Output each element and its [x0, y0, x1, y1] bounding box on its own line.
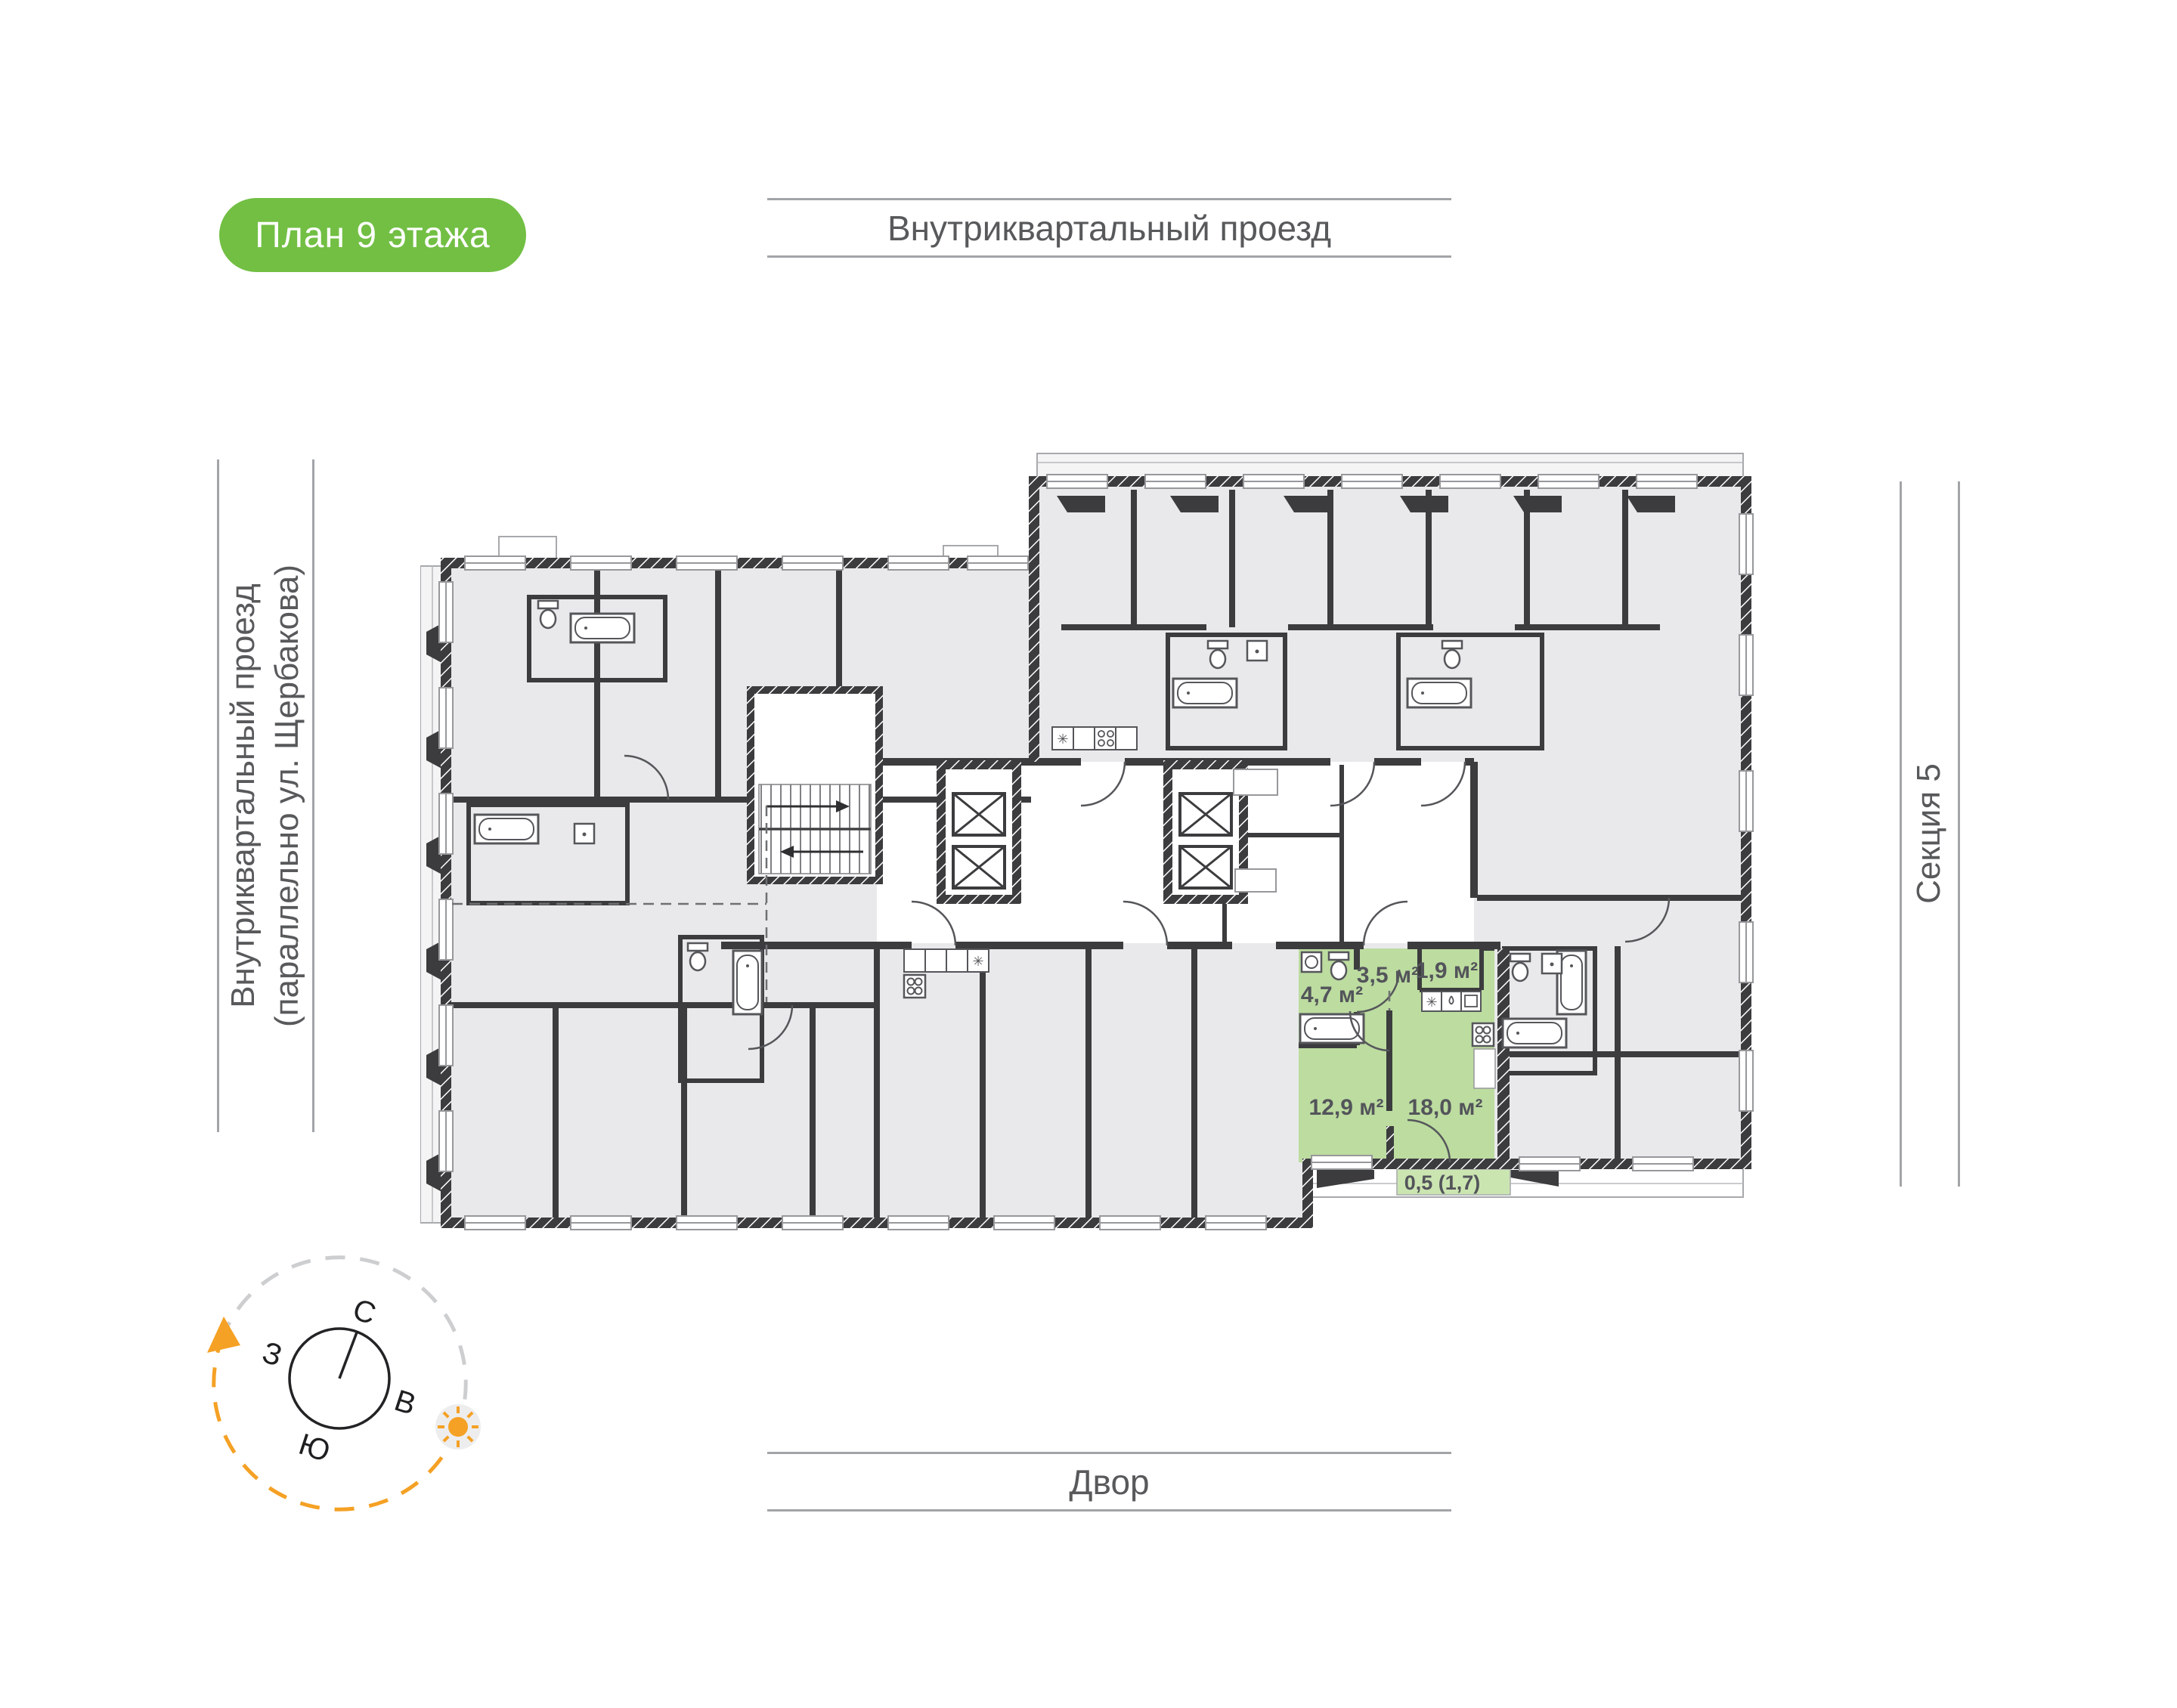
svg-text:✳: ✳ — [1057, 732, 1068, 747]
svg-text:✳: ✳ — [972, 954, 983, 969]
yard-label: Двор — [767, 1452, 1451, 1512]
section-label-text: Секция 5 — [1907, 763, 1951, 904]
area-label-balcony: 0,5 (1,7) — [1404, 1171, 1481, 1194]
area-label-kitchen-living: 18,0 м² — [1408, 1095, 1483, 1120]
section-line-inner — [1958, 481, 1960, 1187]
building-body — [446, 481, 1746, 1223]
area-label-bedroom: 12,9 м² — [1309, 1095, 1384, 1120]
svg-text:✳: ✳ — [1426, 995, 1437, 1010]
area-label-bathroom: 4,7 м² — [1301, 982, 1363, 1007]
compass-north: С — [348, 1293, 379, 1332]
compass-rose: С В Ю З — [195, 1239, 485, 1530]
elevator-core-left — [941, 765, 1017, 899]
street-line-left-outer — [217, 459, 219, 1132]
floor-plan: ✳ ✳ ✳ — [420, 450, 1754, 1258]
street-label-top: Внутриквартальный проезд — [767, 198, 1451, 258]
staircase — [751, 690, 879, 880]
street-label-left-line1: Внутриквартальный проезд — [221, 565, 265, 1027]
compass-south: Ю — [295, 1428, 334, 1468]
yard-label-text: Двор — [1069, 1462, 1149, 1502]
sun-path-arrow-icon — [207, 1317, 240, 1353]
compass-east: В — [391, 1384, 420, 1422]
sun-icon — [435, 1404, 481, 1450]
area-label-hallway: 3,5 м² — [1357, 963, 1419, 988]
floor-badge: План 9 этажа — [219, 198, 526, 272]
street-label-top-text: Внутриквартальный проезд — [887, 208, 1331, 249]
street-line-left-inner — [312, 459, 314, 1132]
section-line-outer — [1900, 481, 1902, 1187]
compass-west: З — [259, 1335, 286, 1372]
area-label-storage: 1,9 м² — [1416, 958, 1478, 983]
floor-badge-label: План 9 этажа — [255, 215, 490, 256]
elevator-core-right — [1168, 765, 1243, 899]
street-label-left-line2: (параллельно ул. Щербакова) — [265, 565, 309, 1027]
